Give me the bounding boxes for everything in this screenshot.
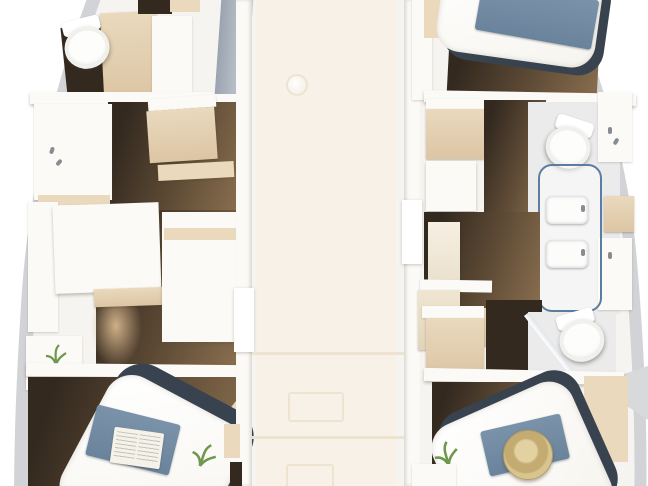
catamaran-floorplan [0, 0, 648, 486]
hull-shells [0, 0, 648, 486]
right-hull-body [396, 0, 635, 486]
bridge-deck-floor [236, 0, 420, 486]
left-hull-body [28, 0, 256, 486]
